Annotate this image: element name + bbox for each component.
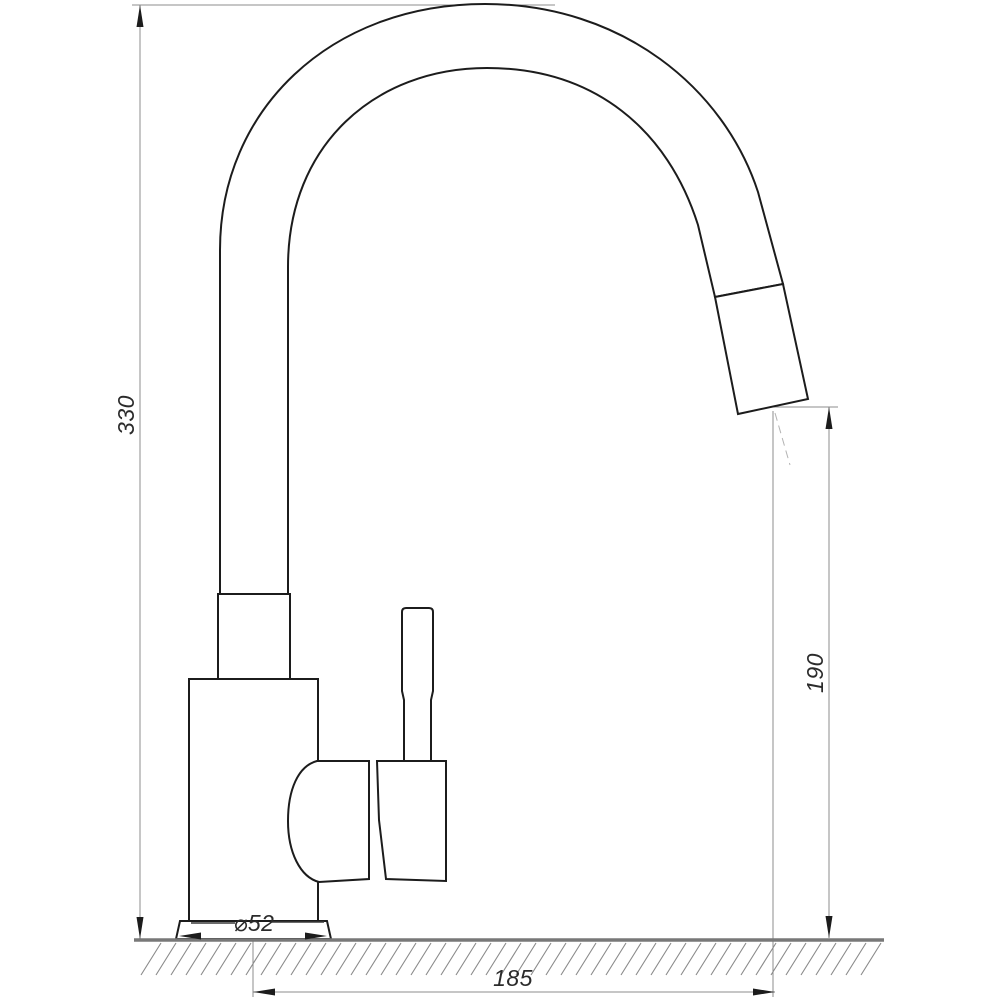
spray-head: [715, 284, 808, 414]
handle-lever-stick: [402, 608, 433, 761]
arrow-down-190: [826, 916, 833, 938]
faucet-outline: [176, 4, 808, 939]
arrow-up-330: [137, 5, 144, 27]
technical-drawing-page: 330 190 185 ⌀52: [0, 0, 1000, 1000]
spout-gooseneck-arc: [220, 4, 783, 594]
spray-direction-line: [775, 413, 790, 465]
riser-collar: [218, 594, 290, 679]
arrow-left-185: [253, 989, 275, 996]
handle-cartridge-body: [377, 761, 446, 881]
technical-drawing-canvas: 330 190 185 ⌀52: [0, 0, 1000, 1000]
label-spout-outlet-height: 190: [802, 653, 828, 693]
arrow-right-185: [753, 989, 775, 996]
arrow-down-330: [137, 917, 144, 939]
label-base-diameter: ⌀52: [234, 910, 275, 936]
handle-ball-joint: [288, 761, 369, 882]
label-spout-reach: 185: [493, 965, 533, 991]
label-overall-height: 330: [113, 395, 139, 435]
arrow-up-190: [826, 407, 833, 429]
